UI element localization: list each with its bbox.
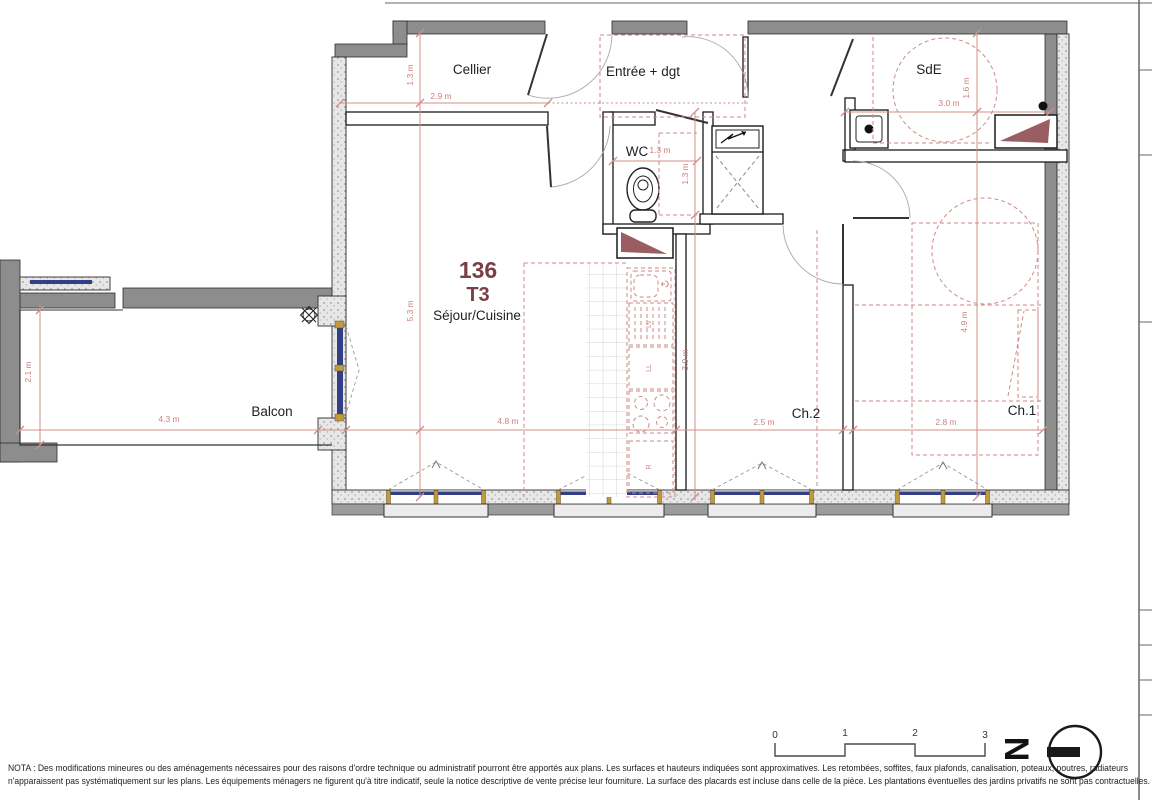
- dim-kitchen-depth: 3.9 m: [680, 349, 690, 370]
- corridor-window: [30, 280, 92, 284]
- entrance-door-arc: [682, 37, 748, 97]
- cellier-door-leaf: [528, 34, 547, 95]
- dim-wc-depth: 1.3 m: [680, 163, 690, 184]
- scale-bar: 0 1 2 3: [772, 728, 988, 756]
- room-label-balcon: Balcon: [251, 404, 292, 419]
- room-label-entree: Entrée + dgt: [606, 64, 680, 79]
- dim-sde-depth: 1.6 m: [961, 77, 971, 98]
- dim-sde-width: 3.0 m: [938, 98, 959, 108]
- dim-ch1-width: 2.8 m: [935, 417, 956, 427]
- sde-drain-dot: [1039, 102, 1048, 111]
- fridge-label: R: [646, 464, 653, 469]
- scale-tick-0: 0: [772, 730, 778, 741]
- room-label-ch1: Ch.1: [1008, 403, 1037, 418]
- dim-balcon-depth: 2.1 m: [23, 361, 33, 382]
- survey-point-icon: [301, 307, 318, 324]
- balcony-outline: [20, 307, 359, 446]
- sejour-door-leaf: [547, 126, 551, 187]
- kitchen-zone: LV LL R: [524, 263, 675, 497]
- toilet-icon: [627, 168, 659, 222]
- unit-number: 136: [459, 257, 497, 283]
- nota-block: NOTA : Des modifications mineures ou des…: [8, 763, 1150, 786]
- dim-sejour-depth: 5.3 m: [405, 300, 415, 321]
- sde-door-leaf: [831, 39, 853, 96]
- room-label-sejour-cuisine: Séjour/Cuisine: [433, 308, 521, 323]
- scale-tick-1: 1: [842, 728, 848, 739]
- sde-duct: [995, 115, 1057, 148]
- window-sejour-left: [384, 461, 488, 517]
- sde-turning-circle: [893, 38, 997, 142]
- dim-balcon-width: 4.3 m: [158, 414, 179, 424]
- north-letter: N: [997, 737, 1035, 762]
- nota-line-2: n'apparaissent pas systématiquement sur …: [8, 776, 1150, 786]
- room-label-wc: WC: [626, 144, 649, 159]
- unit-type: T3: [466, 284, 489, 306]
- wc-duct: [617, 228, 673, 258]
- dim-sejour-width: 4.8 m: [497, 416, 518, 426]
- technical-closet: [712, 126, 763, 214]
- dim-ch2-width: 2.5 m: [753, 417, 774, 427]
- dim-cellier-width: 2.9 m: [430, 91, 451, 101]
- sde-sink-icon: [850, 110, 888, 148]
- window-ch2: [708, 462, 816, 517]
- dishwasher-label: LV: [646, 320, 653, 328]
- room-label-cellier: Cellier: [453, 62, 492, 77]
- scale-tick-3: 3: [982, 730, 988, 741]
- room-label-sde: SdE: [916, 62, 942, 77]
- room-label-ch2: Ch.2: [792, 406, 821, 421]
- dim-wc-width: 1.3 m: [649, 145, 670, 155]
- nota-line-1: NOTA : Des modifications mineures ou des…: [8, 763, 1128, 773]
- balcony-door-glazing: [337, 328, 343, 416]
- dim-ch1-depth: 4.9 m: [959, 311, 969, 332]
- floor-plan-sheet: LV LL R: [0, 0, 1152, 800]
- kitchen-tiles: [586, 265, 627, 497]
- exterior-walls: [0, 21, 1069, 515]
- dimension-lines: 2.9 m 1.3 m 5.3 m 3.0 m 1.6 m 1.3 m 1.3 …: [16, 29, 1054, 501]
- ch1-turning-circle: [932, 198, 1038, 304]
- dim-cellier-depth: 1.3 m: [405, 64, 415, 85]
- washing-machine-label: LL: [646, 364, 653, 372]
- scale-tick-2: 2: [912, 728, 918, 739]
